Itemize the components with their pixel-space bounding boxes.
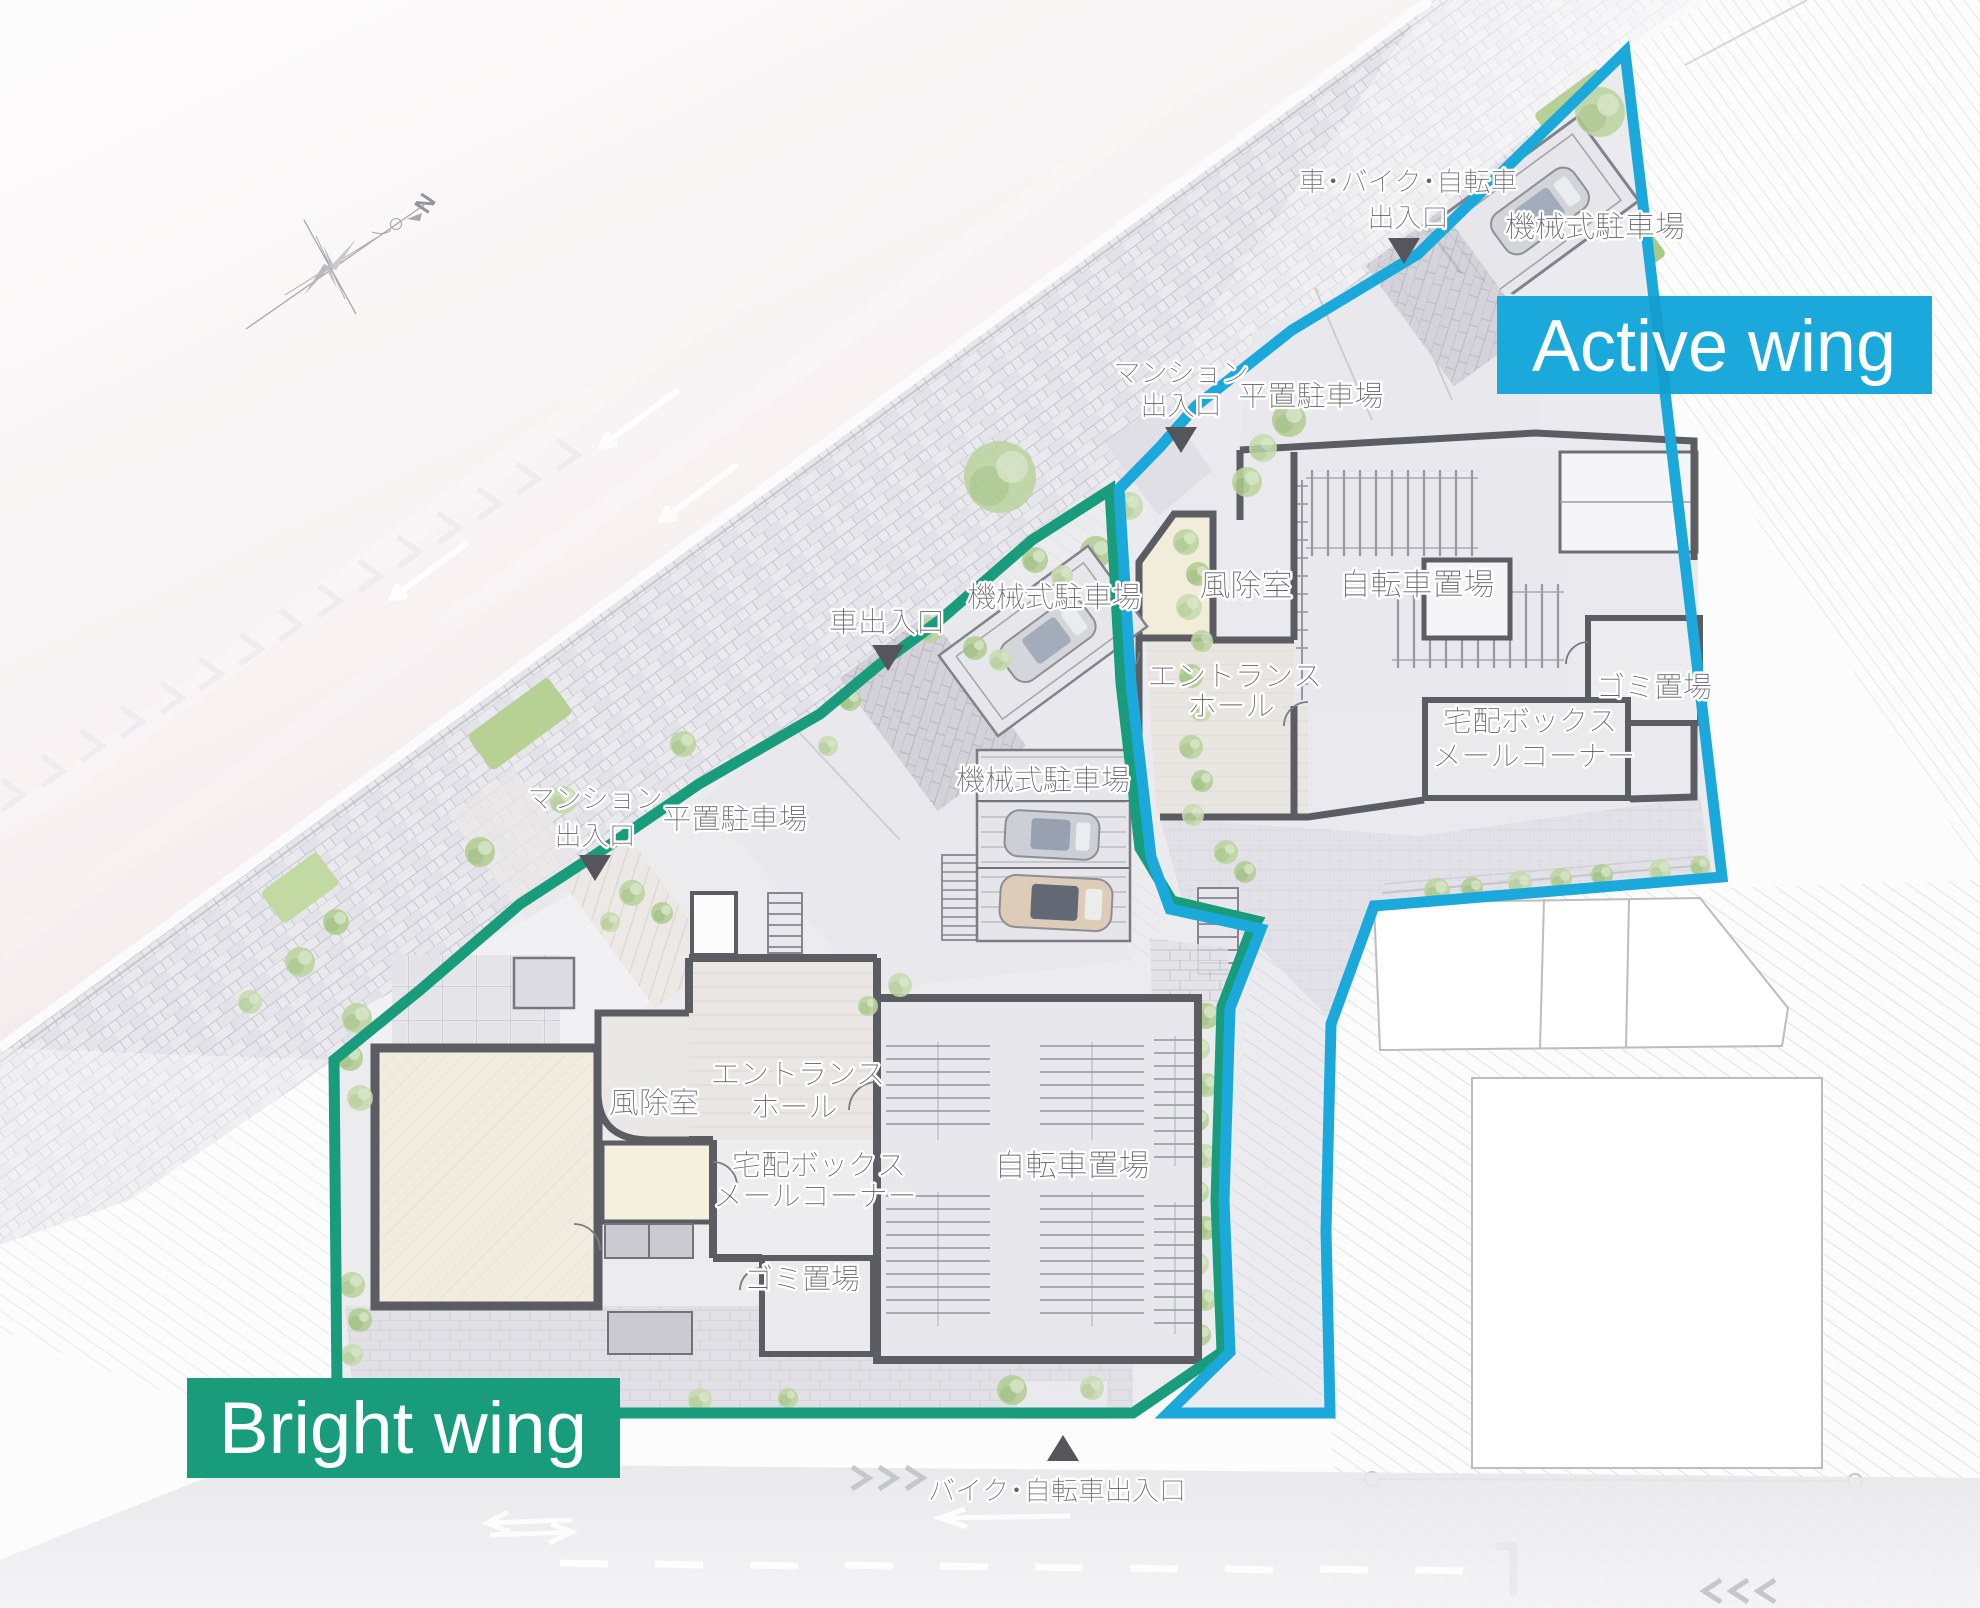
svg-text:Bright wing: Bright wing: [219, 1388, 587, 1469]
svg-text:Active wing: Active wing: [1532, 306, 1896, 387]
